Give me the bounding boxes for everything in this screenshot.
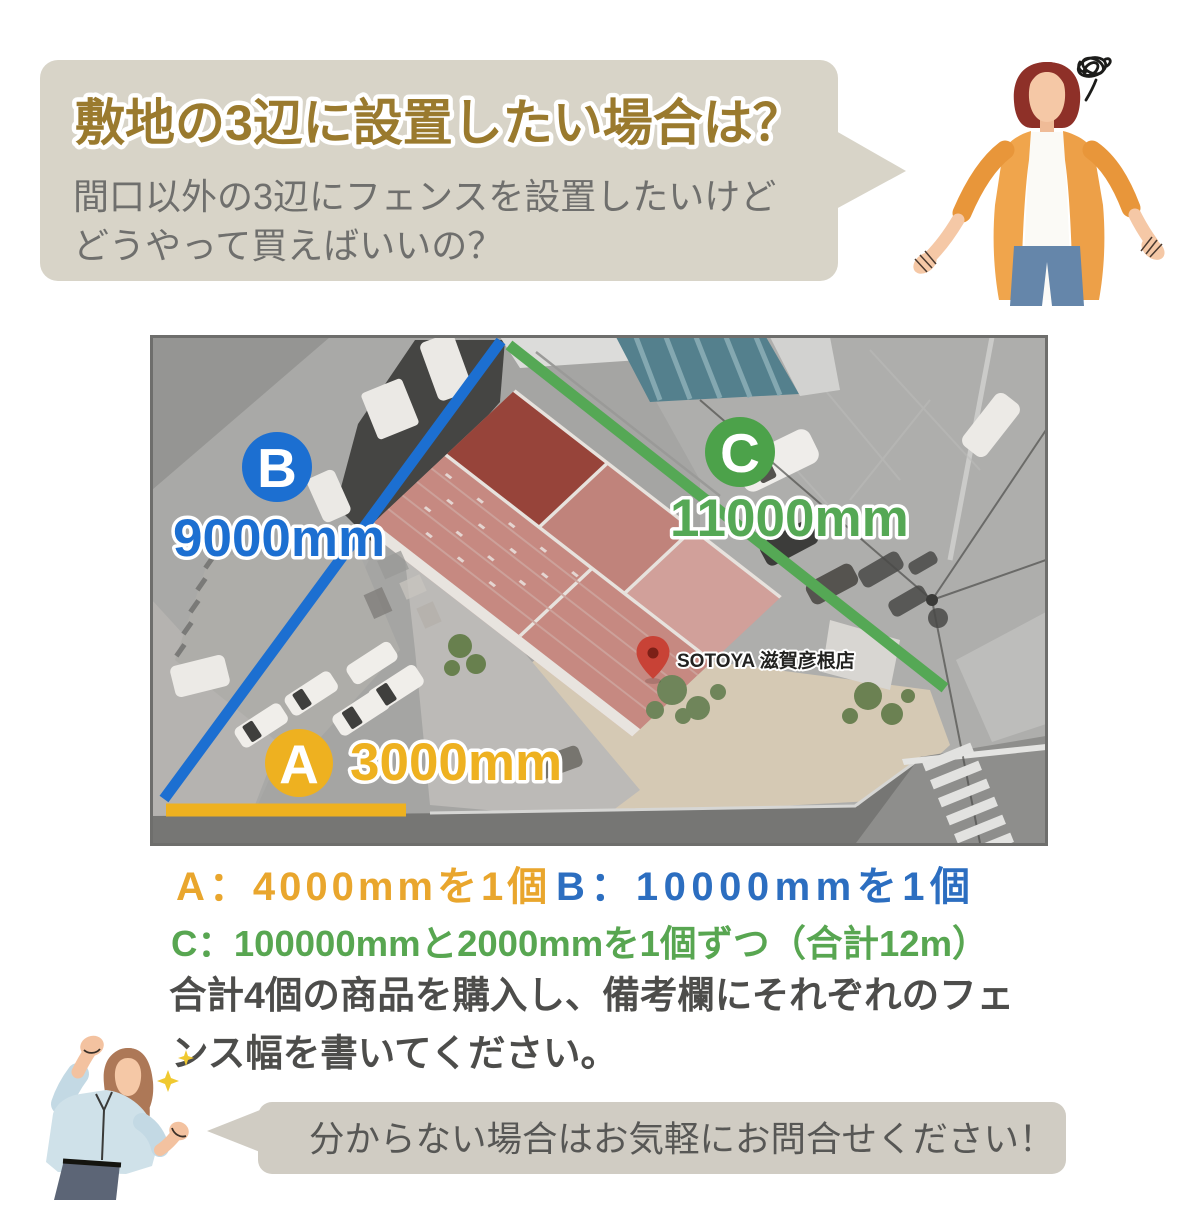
svg-text:C: C xyxy=(720,422,760,484)
svg-text:分からない場合はお気軽にお問合せください！: 分からない場合はお気軽にお問合せください！ xyxy=(309,1119,1055,1159)
svg-text:A：4000mmを1個: A：4000mmを1個 xyxy=(176,865,551,909)
svg-text:9000mm: 9000mm xyxy=(173,509,385,568)
svg-text:どうやって買えばいいの？: どうやって買えばいいの？ xyxy=(73,225,503,266)
svg-text:A: A xyxy=(279,733,319,795)
svg-text:間口以外の3辺にフェンスを設置したいけど: 間口以外の3辺にフェンスを設置したいけど xyxy=(73,176,776,217)
svg-text:ンス幅を書いてください。: ンス幅を書いてください。 xyxy=(171,1032,618,1074)
svg-text:3000mm: 3000mm xyxy=(350,733,562,792)
svg-text:C：100000mmと2000mmを1個ずつ（合計12m）: C：100000mmと2000mmを1個ずつ（合計12m） xyxy=(171,923,989,964)
svg-text:11000mm: 11000mm xyxy=(670,489,909,548)
svg-text:SOTOYA 滋賀彦根店: SOTOYA 滋賀彦根店 xyxy=(677,649,855,672)
svg-text:敷地の3辺に設置したい場合は？: 敷地の3辺に設置したい場合は？ xyxy=(75,95,803,151)
svg-text:B：10000mmを1個: B：10000mmを1個 xyxy=(556,865,976,909)
svg-text:合計4個の商品を購入し、備考欄にそれぞれのフェ: 合計4個の商品を購入し、備考欄にそれぞれのフェ xyxy=(169,974,1014,1016)
svg-text:B: B xyxy=(257,437,297,499)
